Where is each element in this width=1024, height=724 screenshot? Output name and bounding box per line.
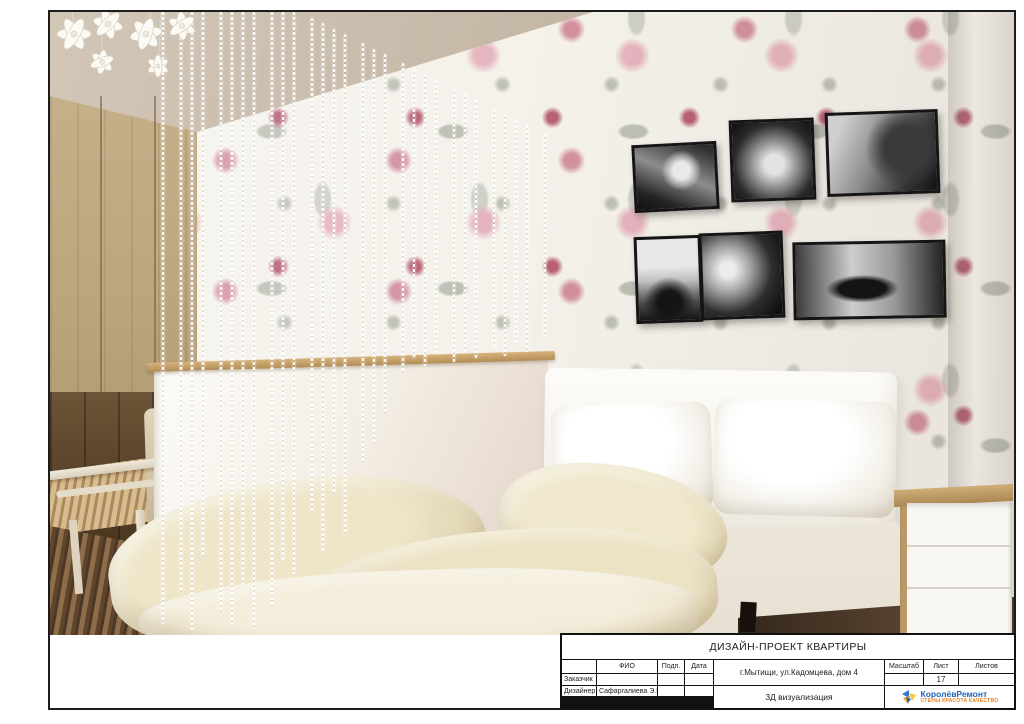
korolev-remont-logo-icon bbox=[901, 689, 917, 705]
photo-surfboard-beach bbox=[825, 109, 941, 197]
company-logo-cell: КоролёвРемонт СТЕНЫ КРАСОТА КАЧЕСТВО bbox=[885, 686, 1014, 708]
drawing-frame bbox=[48, 10, 1016, 710]
bed-leg bbox=[739, 602, 757, 633]
logo-tagline: СТЕНЫ КРАСОТА КАЧЕСТВО bbox=[921, 699, 999, 704]
sign-cell bbox=[658, 686, 684, 696]
date-header: Дата bbox=[685, 660, 713, 673]
flower-chandelier bbox=[50, 12, 242, 96]
customer-fio bbox=[597, 674, 657, 685]
title-block: ДИЗАЙН-ПРОЕКТ КВАРТИРЫ ФИО Подп. Дата г.… bbox=[560, 633, 1016, 710]
drawer-seam bbox=[907, 545, 1012, 547]
design-project-sheet: ДИЗАЙН-ПРОЕКТ КВАРТИРЫ ФИО Подп. Дата г.… bbox=[0, 0, 1024, 724]
sign-cell bbox=[658, 674, 684, 685]
logo-name: КоролёвРемонт bbox=[921, 690, 988, 699]
logo-text: КоролёвРемонт СТЕНЫ КРАСОТА КАЧЕСТВО bbox=[921, 690, 999, 705]
empty-header-cell bbox=[562, 660, 596, 673]
photo-wave-curl bbox=[699, 231, 786, 321]
drawer-seam bbox=[907, 587, 1012, 589]
sheet-number: 17 bbox=[924, 674, 958, 685]
row-label-designer: Дизайнер bbox=[562, 686, 596, 696]
sheets-header: Листов bbox=[959, 660, 1014, 673]
pillow bbox=[713, 398, 898, 519]
photo-surfer-in-wave bbox=[729, 118, 817, 203]
date-cell bbox=[685, 686, 713, 696]
photo-palm-trees bbox=[631, 141, 719, 213]
sheet-title: ДИЗАЙН-ПРОЕКТ КВАРТИРЫ bbox=[562, 635, 1014, 659]
sheets-value bbox=[959, 674, 1014, 685]
photo-lying-figure bbox=[792, 240, 946, 321]
designer-fio: Сафаргалиева Э.Г. bbox=[597, 686, 657, 696]
date-cell bbox=[685, 674, 713, 685]
company-logo: КоролёвРемонт СТЕНЫ КРАСОТА КАЧЕСТВО bbox=[901, 689, 999, 705]
bedroom-3d-render bbox=[50, 12, 1014, 635]
scale-header: Масштаб bbox=[885, 660, 923, 673]
drawing-name: 3Д визуализация bbox=[714, 686, 884, 708]
sign-header: Подп. bbox=[658, 660, 684, 673]
scale-value bbox=[885, 674, 923, 685]
sheet-header: Лист bbox=[924, 660, 958, 673]
row-label-customer: Заказчик bbox=[562, 674, 596, 685]
photo-yoga-on-rock bbox=[634, 235, 704, 324]
project-address: г.Мытищи, ул.Кадомцева, дом 4 bbox=[714, 660, 884, 685]
fio-header: ФИО bbox=[597, 660, 657, 673]
nightstand-drawers bbox=[900, 503, 1012, 633]
